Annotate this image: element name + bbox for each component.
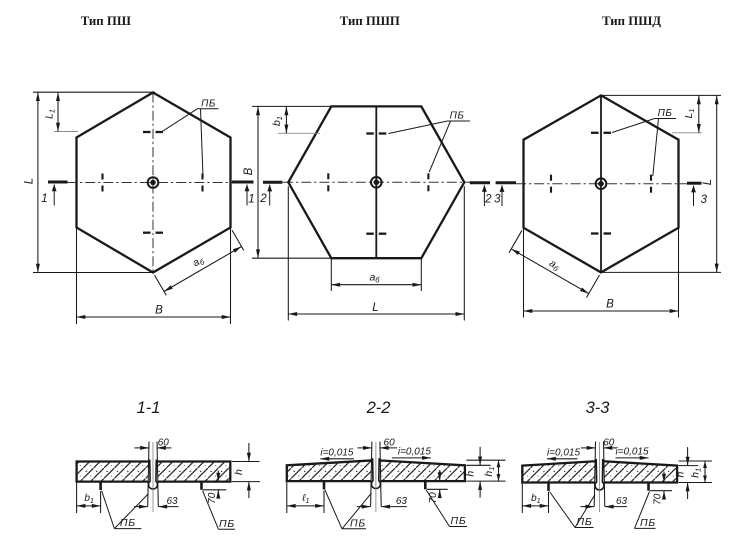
svg-text:ПБ: ПБ (350, 517, 366, 529)
svg-text:ПБ: ПБ (658, 108, 673, 119)
svg-text:L: L (24, 178, 36, 184)
svg-text:ПБ: ПБ (120, 517, 136, 529)
svg-text:ПБ: ПБ (450, 515, 466, 527)
svg-text:L: L (372, 302, 378, 314)
svg-text:Тип ПШД: Тип ПШД (602, 14, 661, 28)
svg-text:h: h (233, 469, 245, 475)
svg-text:i=0,015: i=0,015 (320, 447, 354, 458)
svg-text:B: B (155, 305, 163, 317)
svg-text:63: 63 (616, 496, 628, 507)
svg-text:B: B (606, 299, 614, 311)
svg-text:63: 63 (396, 496, 408, 507)
svg-text:Тип ПШП: Тип ПШП (340, 14, 400, 28)
svg-text:1: 1 (248, 194, 254, 206)
svg-text:1: 1 (41, 193, 47, 205)
svg-text:ПБ: ПБ (450, 111, 465, 122)
svg-text:i=0,015: i=0,015 (398, 447, 432, 458)
svg-text:2: 2 (259, 193, 267, 205)
svg-text:70: 70 (653, 493, 664, 505)
svg-text:ПБ: ПБ (576, 516, 592, 528)
svg-text:h: h (674, 472, 686, 478)
svg-text:3: 3 (701, 194, 708, 206)
svg-text:i=0,015: i=0,015 (615, 447, 649, 458)
svg-text:1-1: 1-1 (137, 399, 161, 417)
svg-text:70: 70 (207, 492, 218, 504)
svg-text:63: 63 (166, 496, 178, 507)
svg-text:60: 60 (158, 437, 170, 448)
svg-text:60: 60 (603, 437, 615, 448)
svg-text:3-3: 3-3 (586, 399, 611, 417)
svg-text:ПБ: ПБ (201, 98, 216, 109)
svg-text:h: h (464, 471, 476, 477)
svg-text:i=0,015: i=0,015 (547, 447, 581, 458)
svg-text:B: B (243, 167, 255, 175)
svg-text:L: L (702, 179, 714, 185)
svg-text:ПБ: ПБ (640, 517, 656, 529)
svg-text:2: 2 (484, 194, 492, 206)
svg-text:ПБ: ПБ (219, 518, 235, 530)
svg-text:2-2: 2-2 (366, 399, 391, 417)
svg-text:Тип ПШ: Тип ПШ (81, 14, 131, 28)
svg-text:3: 3 (494, 194, 501, 206)
svg-text:60: 60 (384, 437, 396, 448)
